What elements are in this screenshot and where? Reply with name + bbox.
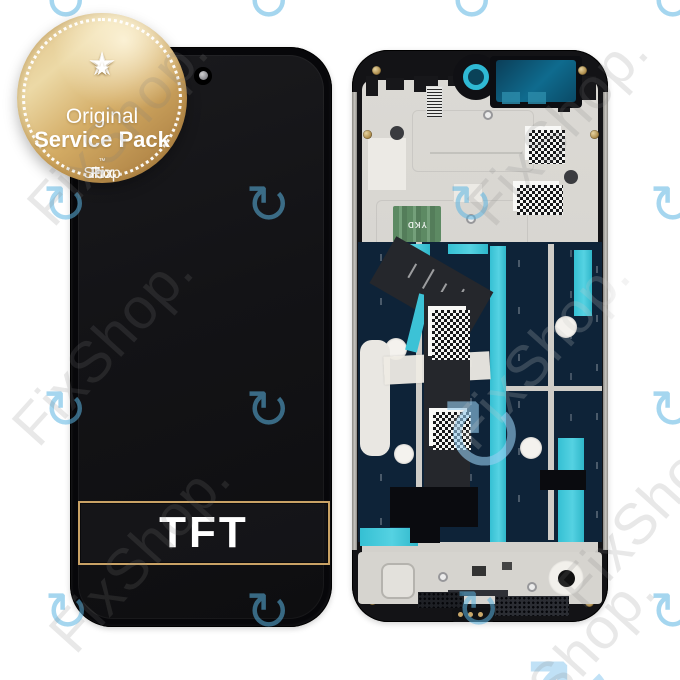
flex-connector-label: YKD (407, 220, 427, 229)
backplate-hole-white (520, 437, 542, 459)
white-sticker (368, 138, 406, 190)
camera-hole-teal-ring (463, 64, 489, 90)
original-service-pack-badge: ★ ★ ★ ★ ★ Original Service Pack ↻ Fix Sh… (17, 13, 187, 183)
screw (438, 572, 448, 582)
adhesive-cyan-strip (448, 244, 488, 254)
sensor-module-contact (502, 92, 520, 104)
panel-type-label-box: TFT (78, 501, 330, 565)
screw (372, 66, 381, 75)
backplate-etch-line (412, 110, 534, 172)
screw (363, 130, 372, 139)
charging-port-contacts (452, 608, 494, 622)
bottom-component (472, 566, 486, 576)
adhesive-cyan-strip (558, 438, 584, 542)
trademark-symbol: ™ (99, 158, 106, 165)
star-icon: ★ (93, 60, 110, 79)
antenna-mesh (418, 592, 464, 608)
frame-rail-right (603, 92, 608, 550)
qr-sticker (513, 181, 559, 211)
screw (527, 582, 537, 592)
sensor-module-contact (528, 92, 546, 104)
adhesive-cyan-strip (490, 246, 506, 542)
backplate-hole-white (555, 316, 577, 338)
panel-gap (548, 244, 554, 540)
fixshop-arrow-watermark-icon: ↻ (649, 0, 680, 29)
product-photo-stage: TFT (0, 0, 680, 680)
badge-title: Original (17, 105, 187, 129)
brand-name-light: Shop (83, 165, 120, 183)
front-camera-lens (199, 71, 208, 80)
front-camera-punch-hole (194, 67, 212, 85)
panel-type-label: TFT (159, 508, 249, 558)
frame-rail-left (352, 92, 357, 550)
fixshop-arrow-watermark-icon: ↻ (448, 0, 493, 29)
frame-cutout (386, 78, 404, 90)
panel-gap (502, 386, 602, 391)
adhesive-cyan-strip (574, 250, 592, 316)
rear-hole-black (558, 570, 575, 587)
bottom-shield (410, 487, 440, 543)
badge-subtitle: Service Pack (17, 127, 187, 153)
sensor-module (490, 56, 582, 108)
qr-sticker-on-flex (429, 408, 467, 446)
label-sticker (453, 183, 483, 203)
display-back-photo: YKD FPC (352, 50, 608, 622)
screw (466, 214, 476, 224)
fixshop-arrow-watermark-icon: ↻ (649, 383, 680, 437)
backplate-print-line (430, 152, 522, 154)
screw (590, 130, 599, 139)
antenna-mesh (495, 596, 569, 616)
screw (578, 66, 587, 75)
badge-dotted-ring (22, 18, 182, 178)
fixshop-arrow-watermark-icon: ↻ (649, 178, 680, 232)
screw (483, 110, 493, 120)
fixshop-arrow-watermark-icon-large: ↻ (522, 642, 623, 680)
qr-sticker (525, 126, 561, 160)
fixshop-arrow-watermark-icon: ↻ (245, 0, 290, 29)
bottom-shield (540, 470, 586, 490)
backplate-hole (564, 170, 578, 184)
backplate-hole-white (394, 444, 414, 464)
frame-cutout (366, 76, 378, 96)
backplate-hole (390, 126, 404, 140)
flex-connector-green: YKD (393, 206, 441, 242)
speaker-enclosure (381, 563, 415, 599)
barcode-sticker (426, 86, 443, 118)
bottom-component (502, 562, 512, 570)
qr-sticker-on-flex (428, 306, 466, 356)
fixshop-arrow-watermark-icon: ↻ (649, 585, 680, 639)
